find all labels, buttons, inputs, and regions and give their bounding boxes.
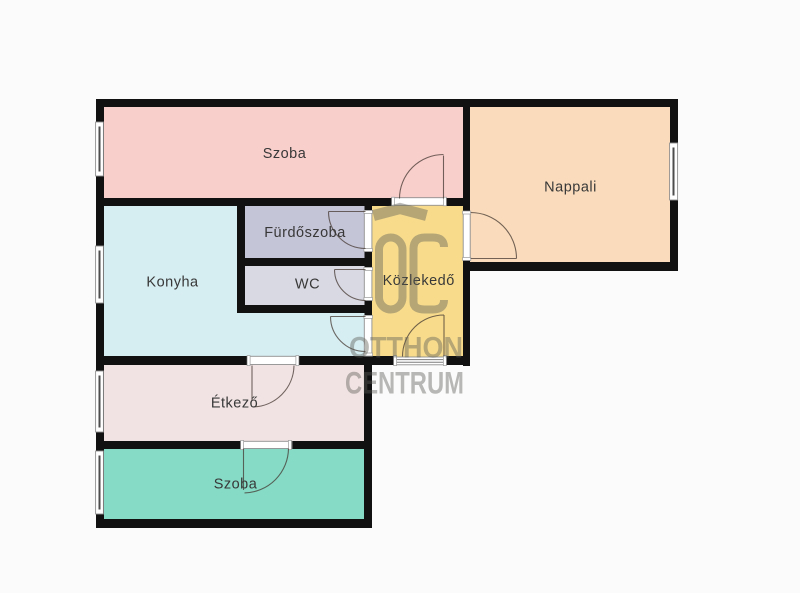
svg-text:Közlekedő: Közlekedő	[383, 273, 455, 289]
svg-text:Nappali: Nappali	[544, 180, 597, 196]
svg-text:CENTRUM: CENTRUM	[345, 365, 464, 401]
svg-text:Szoba: Szoba	[263, 146, 307, 162]
svg-text:Étkező: Étkező	[211, 395, 258, 412]
svg-text:OTTHON: OTTHON	[349, 332, 463, 365]
svg-text:WC: WC	[295, 277, 320, 293]
svg-text:Szoba: Szoba	[214, 477, 258, 493]
svg-text:Fürdőszoba: Fürdőszoba	[264, 225, 346, 241]
svg-text:Konyha: Konyha	[146, 275, 199, 291]
